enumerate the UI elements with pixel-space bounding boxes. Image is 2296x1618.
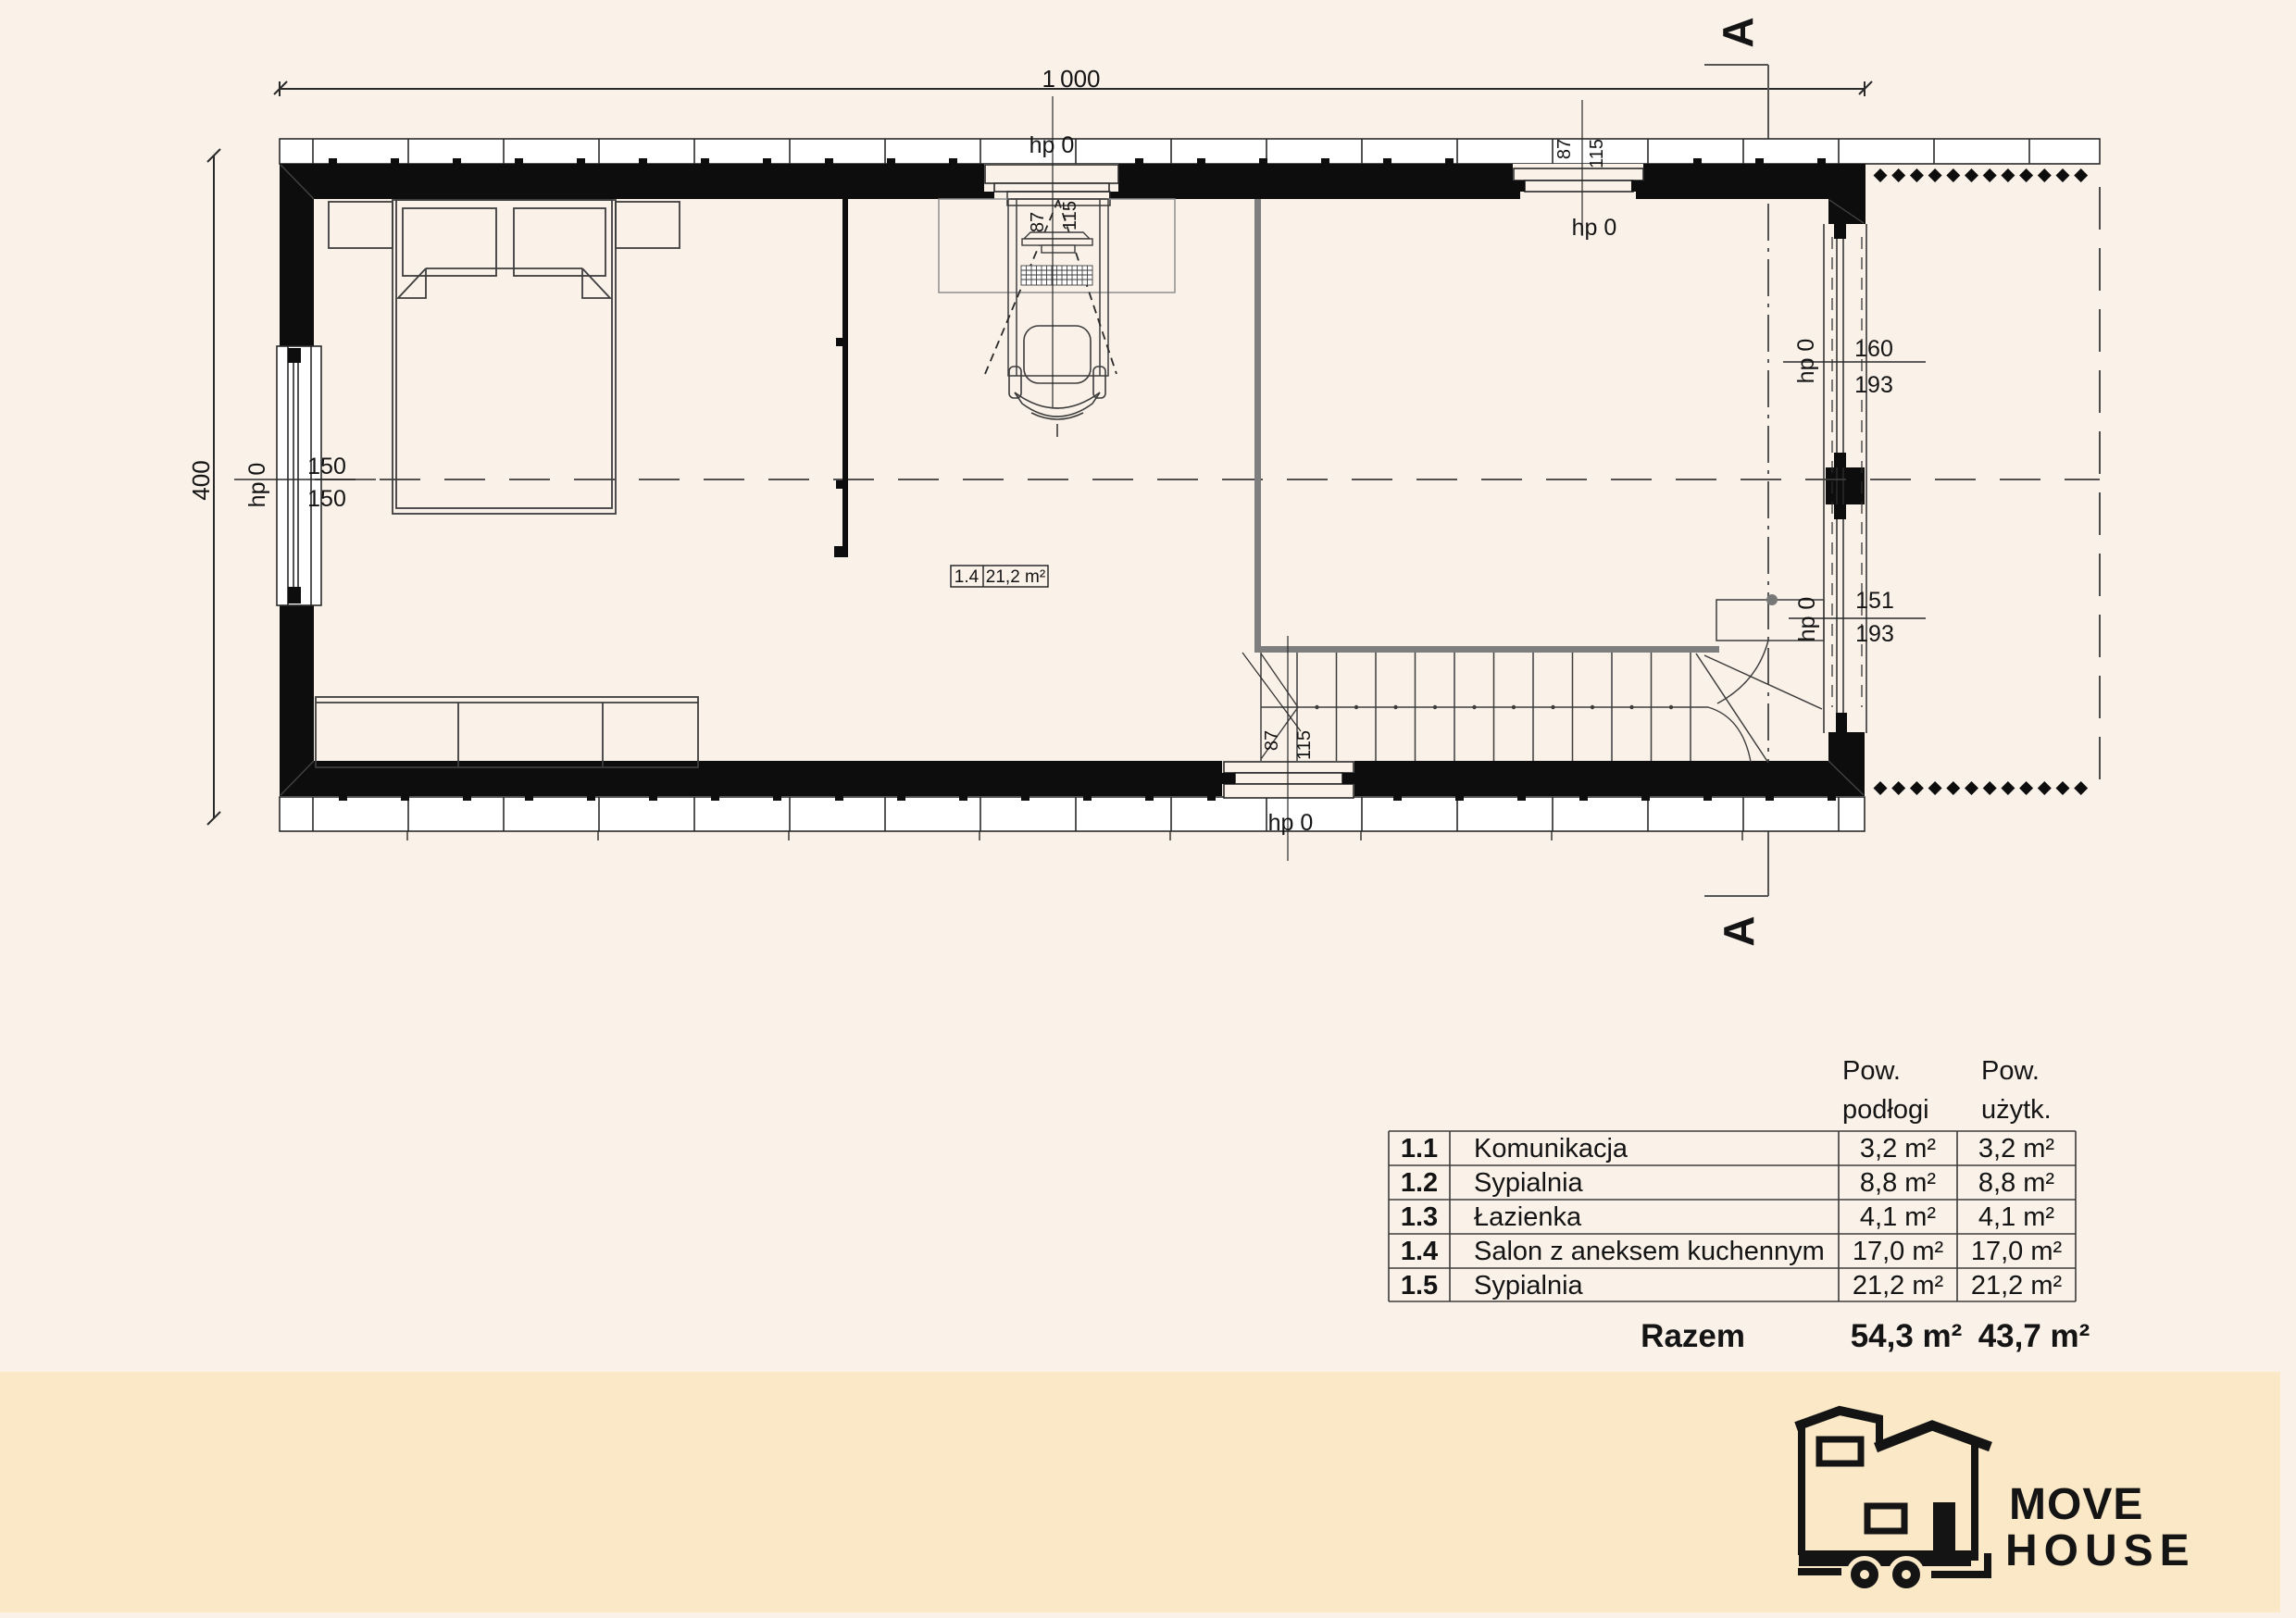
- svg-text:43,7 m²: 43,7 m²: [1978, 1318, 2090, 1354]
- svg-text:hp 0: hp 0: [1268, 810, 1314, 836]
- svg-text:8,8 m²: 8,8 m²: [1860, 1168, 1937, 1198]
- svg-text:160: 160: [1854, 336, 1893, 362]
- svg-text:17,0 m²: 17,0 m²: [1971, 1237, 2063, 1266]
- svg-text:hp 0: hp 0: [1572, 215, 1617, 241]
- svg-text:Łazienka: Łazienka: [1474, 1202, 1582, 1232]
- svg-text:4,1 m²: 4,1 m²: [1978, 1202, 2055, 1232]
- svg-text:87: 87: [1028, 212, 1048, 232]
- svg-text:Sypialnia: Sypialnia: [1474, 1271, 1584, 1301]
- svg-text:115: 115: [1294, 730, 1315, 760]
- svg-text:3,2 m²: 3,2 m²: [1860, 1134, 1937, 1164]
- svg-text:151: 151: [1855, 588, 1894, 614]
- svg-text:8,8 m²: 8,8 m²: [1978, 1168, 2055, 1198]
- svg-text:A: A: [1715, 915, 1763, 946]
- svg-text:21,2 m²: 21,2 m²: [1853, 1271, 1944, 1301]
- svg-text:87: 87: [1554, 139, 1575, 159]
- svg-text:1.4: 1.4: [955, 567, 980, 587]
- svg-text:1.3: 1.3: [1401, 1202, 1438, 1232]
- svg-text:MOVE: MOVE: [2009, 1480, 2143, 1529]
- svg-text:3,2 m²: 3,2 m²: [1978, 1134, 2055, 1164]
- svg-text:1 000: 1 000: [1042, 65, 1100, 93]
- svg-text:1.4: 1.4: [1401, 1237, 1438, 1266]
- svg-text:hp 0: hp 0: [1793, 339, 1819, 384]
- svg-text:115: 115: [1060, 201, 1080, 230]
- svg-text:użytk.: użytk.: [1981, 1095, 2052, 1125]
- svg-text:54,3 m²: 54,3 m²: [1851, 1318, 1963, 1354]
- svg-text:150: 150: [307, 486, 346, 512]
- svg-text:HOUSE: HOUSE: [2005, 1526, 2196, 1575]
- svg-text:Sypialnia: Sypialnia: [1474, 1168, 1584, 1198]
- svg-text:Komunikacja: Komunikacja: [1474, 1134, 1628, 1164]
- svg-text:hp 0: hp 0: [1029, 132, 1075, 158]
- svg-text:Pow.: Pow.: [1842, 1056, 1901, 1086]
- svg-text:1.5: 1.5: [1401, 1271, 1438, 1301]
- svg-text:21,2 m²: 21,2 m²: [986, 567, 1045, 587]
- svg-text:A: A: [1714, 17, 1762, 47]
- svg-text:Razem: Razem: [1641, 1318, 1745, 1354]
- svg-text:400: 400: [187, 460, 215, 500]
- svg-text:Pow.: Pow.: [1981, 1056, 2040, 1086]
- svg-text:87: 87: [1262, 730, 1282, 751]
- svg-text:1.2: 1.2: [1401, 1168, 1438, 1198]
- svg-text:193: 193: [1855, 621, 1894, 647]
- svg-text:Salon z aneksem kuchennym: Salon z aneksem kuchennym: [1474, 1237, 1825, 1266]
- svg-text:4,1 m²: 4,1 m²: [1860, 1202, 1937, 1232]
- svg-text:193: 193: [1854, 372, 1893, 398]
- svg-text:21,2 m²: 21,2 m²: [1971, 1271, 2063, 1301]
- svg-text:podłogi: podłogi: [1842, 1095, 1929, 1125]
- svg-text:17,0 m²: 17,0 m²: [1853, 1237, 1944, 1266]
- svg-text:115: 115: [1587, 139, 1607, 168]
- svg-text:hp 0: hp 0: [244, 463, 270, 508]
- svg-text:150: 150: [307, 454, 346, 479]
- svg-text:1.1: 1.1: [1401, 1134, 1438, 1164]
- svg-text:hp 0: hp 0: [1794, 597, 1820, 642]
